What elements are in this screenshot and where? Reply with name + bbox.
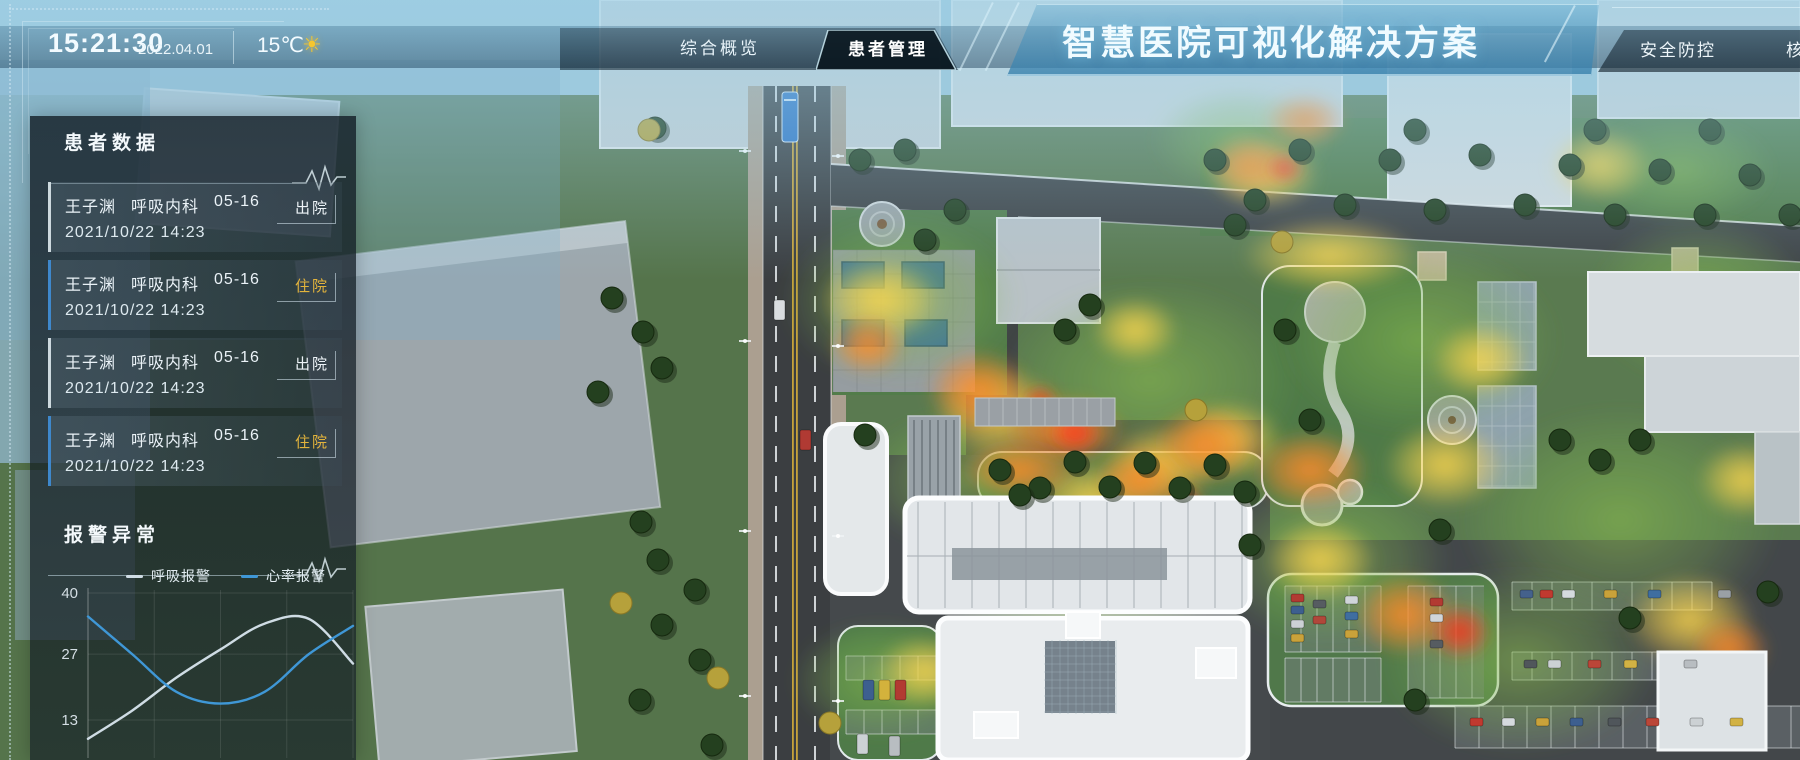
right-top-line [1612, 7, 1800, 8]
svg-text:27: 27 [61, 646, 78, 663]
patient-name: 王子渊 [65, 349, 116, 373]
page-title: 智慧医院可视化解决方案 [1007, 4, 1599, 76]
patient-list-item[interactable]: 王子渊 呼吸内科 05-16 2021/10/22 14:23 住院 [48, 416, 342, 486]
patient-name: 王子渊 [65, 271, 116, 295]
alarm-panel-title: 报警异常 [48, 520, 346, 547]
banner-bottomline [1007, 74, 1591, 76]
legend-dash-icon [241, 575, 258, 578]
patient-bed: 05-16 [214, 349, 260, 373]
patient-list-item[interactable]: 王子渊 呼吸内科 05-16 2021/10/22 14:23 出院 [48, 338, 342, 408]
right-nav-band: 安全防控 核 [1598, 30, 1800, 72]
patient-data-panel: 患者数据 王子渊 呼吸内科 05-16 2021/10/22 14:23 出院 [30, 116, 356, 760]
patient-datetime: 2021/10/22 14:23 [65, 302, 330, 320]
tab-patient-management[interactable]: 患者管理 [816, 30, 956, 70]
dashboard-root: 15:21:30 2022.04.01 15℃ ☀ 综合概览 患者管理 智慧医院… [0, 0, 1800, 760]
patient-status-badge: 住院 [277, 429, 336, 458]
patient-department: 呼吸内科 [131, 193, 199, 217]
tab-security-control[interactable]: 安全防控 [1640, 30, 1716, 72]
frame-dotted-vertical [9, 4, 11, 760]
svg-text:13: 13 [61, 712, 78, 729]
svg-text:40: 40 [61, 585, 78, 602]
patient-panel-title: 患者数据 [48, 128, 346, 155]
patient-list-item[interactable]: 王子渊 呼吸内科 05-16 2021/10/22 14:23 出院 [48, 182, 342, 252]
active-tab-label: 患者管理 [816, 30, 956, 70]
patient-list-item[interactable]: 王子渊 呼吸内科 05-16 2021/10/22 14:23 住院 [48, 260, 342, 330]
patient-bed: 05-16 [214, 427, 260, 451]
patient-department: 呼吸内科 [131, 427, 199, 451]
patient-status-badge: 住院 [277, 273, 336, 302]
tab-overview[interactable]: 综合概览 [680, 28, 760, 70]
patient-datetime: 2021/10/22 14:23 [65, 224, 330, 242]
title-banner: 智慧医院可视化解决方案 [1007, 4, 1599, 76]
patient-datetime: 2021/10/22 14:23 [65, 458, 330, 476]
patient-name: 王子渊 [65, 193, 116, 217]
patient-list: 王子渊 呼吸内科 05-16 2021/10/22 14:23 出院 王子渊 呼… [48, 182, 342, 494]
patient-department: 呼吸内科 [131, 271, 199, 295]
patient-department: 呼吸内科 [131, 349, 199, 373]
frame-dotted-horizontal [9, 8, 329, 10]
patient-bed: 05-16 [214, 193, 260, 217]
alarm-line-chart: 402713 [50, 582, 356, 760]
sun-icon: ☀ [302, 32, 322, 58]
patient-status-badge: 出院 [277, 351, 336, 380]
patient-status-badge: 出院 [277, 195, 336, 224]
tab-truncated[interactable]: 核 [1786, 30, 1800, 72]
patient-bed: 05-16 [214, 271, 260, 295]
patient-name: 王子渊 [65, 427, 116, 451]
banner-topline [1037, 4, 1599, 5]
legend-dash-icon [126, 575, 143, 578]
patient-datetime: 2021/10/22 14:23 [65, 380, 330, 398]
